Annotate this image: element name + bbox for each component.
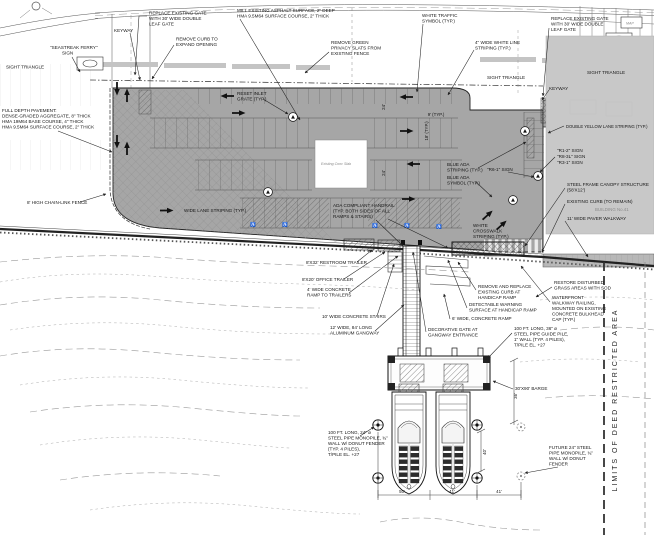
annotation-remove-green: REMOVE GREEN xyxy=(331,40,369,45)
annotation-restore-sod: RESTORE DISTURBED xyxy=(554,280,605,285)
annotation-ramp-trailers: 4' WIDE CONCRETE xyxy=(307,287,351,292)
annotation-ada-handrail: (TYP. BOTH SIDES OF ALL xyxy=(333,209,391,214)
annotation-full-depth: HMA 9.5M64 SURFACE COURSE, 2" THICK xyxy=(2,125,95,130)
utility-symbol xyxy=(32,2,40,10)
annotation-mill-asphalt: HMA 9.5M64 SURFACE COURSE, 2" THICK xyxy=(237,14,330,19)
existing-slab-label: Existing Conc Slab xyxy=(321,162,351,166)
annotation-guide-pile: T/PILE EL. +27 xyxy=(514,343,546,348)
annotation-canopy: STEEL FRAME CANOPY STRUCTURE xyxy=(567,182,649,187)
annotation-crosswalk: WHITE xyxy=(473,223,488,228)
annotation-lane-striping: WIDE LANE STRIPING (TYP.) xyxy=(184,208,247,213)
annotation-canopy: (58'X12') xyxy=(567,188,586,193)
annotation-office-trailer: 8'X20' OFFICE TRAILER xyxy=(302,277,354,282)
annotation-white-line: 4" WIDE WHITE LINE xyxy=(475,40,520,45)
annotation-remove-curb: EXPAND OPENING xyxy=(176,42,217,47)
ghost-stalls-left xyxy=(4,140,104,170)
annotation-railing: WALKWAY RAILING, xyxy=(552,301,596,306)
gate-detail-left xyxy=(77,57,103,70)
annotation-detectable-warning: SURFACE AT HANDICAP RAMP xyxy=(469,308,537,313)
annotation-chain-link: 8' HIGH CHAIN-LINK FENCE xyxy=(27,200,87,205)
annotation-remove-green: PRIVACY SLATS FROM xyxy=(331,46,381,51)
limits-label: LIMITS OF DEED RESTRICTED AREA xyxy=(612,309,619,492)
barge xyxy=(388,348,490,390)
annotation-ada-handrail: RAMPS & STAIRS) xyxy=(333,214,373,219)
annotation-white-traffic: SYMBOL (TYP.) xyxy=(422,19,455,24)
gangway xyxy=(401,240,422,358)
annotation-ada-striping: BLUE ADA xyxy=(447,162,470,167)
annotation-replace-gate-left: REPLACE EXISTING GATE xyxy=(149,11,207,16)
building-41: BUILDING No.41 xyxy=(546,36,654,234)
annotation-double-yellow: DOUBLE YELLOW LANE STRIPING (TYP.) xyxy=(566,124,648,129)
annotation-decorative-gate: DECORATIVE GATE AT xyxy=(428,327,478,332)
annotation-reset-inlet: GRATE (TYP.) xyxy=(237,97,267,102)
dim-18: 18' (TYP.) xyxy=(424,121,429,141)
annotation-existing-curb: EXISTING CURB (TO REMAIN) xyxy=(567,199,633,204)
annotation-seastreak-sign: "SEASTREAK FERRY" xyxy=(50,45,98,50)
ada-symbol-icon: ♿ xyxy=(436,223,442,230)
annotation-future-pile: FENDER xyxy=(549,462,569,467)
annotation-sight-triangle-left: SIGHT TRIANGLE xyxy=(6,65,44,70)
annotation-monopile: 100 FT. LONG, 24" ø xyxy=(328,430,371,435)
annotation-monopile: WALL W/ DONUT FENDER xyxy=(328,441,385,446)
annotation-mill-asphalt: MILL EXISTING ASPHALT SURFACE, 2" DEEP xyxy=(237,8,335,13)
annotation-guide-pile: STEEL PIPE GUIDE PILE, xyxy=(514,332,568,337)
annotation-sign-r3: "R3-1" SIGN xyxy=(557,160,583,165)
ada-symbol-icon: ♿ xyxy=(282,221,288,228)
dim-36: 36' xyxy=(513,393,518,399)
ferry-vessel-right xyxy=(436,384,470,494)
annotation-white-line: STRIPING (TYP.) xyxy=(475,46,511,51)
dim-40: 40' xyxy=(482,449,487,455)
annotation-crosswalk: CROSSWALK xyxy=(473,229,503,234)
annotation-restroom-trailer: 8'X32' RESTROOM TRAILER xyxy=(306,260,368,265)
annotation-sign-r8: "R8-3L" SIGN xyxy=(557,154,585,159)
annotation-replace-gate-right: WITH 30' WIDE DOUBLE xyxy=(551,22,603,27)
annotation-remove-replace-curb: HANDICAP RAMP xyxy=(478,295,516,300)
annotation-ada-symbol: SYMBOL (TYP.) xyxy=(447,181,480,186)
annotation-full-depth: FULL DEPTH PAVEMENT: xyxy=(2,108,57,113)
dim-50: 50' xyxy=(399,489,405,494)
annotation-full-depth: HMA 19M64 BASE COURSE, 4" THICK xyxy=(2,119,84,124)
annotation-remove-replace-curb: EXISTING CURB AT xyxy=(478,290,520,295)
dim-24b: 24' xyxy=(381,170,386,176)
annotation-railing: WATERFRONT xyxy=(552,295,584,300)
map-box: MAP xyxy=(621,17,642,28)
annotation-ada-symbol: BLUE ADA xyxy=(447,175,470,180)
annotation-monopile: (TYP. 4 PILES), xyxy=(328,447,360,452)
annotation-white-traffic: WHITE TRAFFIC xyxy=(422,13,458,18)
annotation-guide-pile: 100 FT. LONG, 36" ø xyxy=(514,326,557,331)
annotation-railing: MOUNTED ON EXISTING xyxy=(552,306,607,311)
annotation-future-pile: FUTURE 24" STEEL xyxy=(549,445,592,450)
annotation-r6-sign: "R6-1" SIGN xyxy=(487,167,513,172)
map-label: MAP xyxy=(626,22,634,26)
ghost-stalls-top-left xyxy=(0,64,96,106)
annotation-remove-replace-curb: REMOVE AND REPLACE xyxy=(478,284,531,289)
dim-24a: 24' xyxy=(381,104,386,110)
annotation-ada-striping: STRIPING (TYP.) xyxy=(447,168,483,173)
annotation-replace-gate-right: REPLACE EXISTING GATE xyxy=(551,16,609,21)
annotation-replace-gate-left: LEAF GATE xyxy=(149,22,174,27)
dim-9: 9' (TYP.) xyxy=(428,112,445,117)
ada-symbol-icon: ♿ xyxy=(372,222,378,229)
annotation-remove-curb: REMOVE CURB TO xyxy=(176,37,218,42)
entrance-island xyxy=(139,90,151,114)
annotation-keyway-right: KEYWAY xyxy=(549,86,568,91)
annotation-gangway: 12' WIDE, 84' LONG xyxy=(330,325,373,330)
annotation-full-depth: DENSE-GRADED AGGREGATE, 8" THICK xyxy=(2,114,91,119)
annotation-future-pile: WALL W/ DONUT xyxy=(549,456,586,461)
annotation-monopile: T/PILE EL. +27 xyxy=(328,452,360,457)
annotation-sight-triangle-mid: SIGHT TRIANGLE xyxy=(487,75,525,80)
annotation-sight-triangle-right: SIGHT TRIANGLE xyxy=(587,70,625,75)
annotation-monopile: STEEL PIPE MONOPILE, ¾" xyxy=(328,436,388,441)
annotation-gangway: ALUMINUM GANGWAY xyxy=(330,331,379,336)
annotation-future-pile: PIPE MONOPILE, ¾" xyxy=(549,451,593,456)
annotation-detectable-warning: DETECTABLE WARNING xyxy=(469,302,523,307)
ferry-vessel-left xyxy=(392,384,426,494)
building-label: BUILDING No.41 xyxy=(595,207,629,212)
gate-post xyxy=(401,240,405,245)
ada-striping-bar xyxy=(527,118,534,158)
existing-fence-line xyxy=(90,80,543,86)
annotation-railing: CAP (TYP.) xyxy=(552,317,576,322)
annotation-railing: CONCRETE BULKHEAD xyxy=(552,312,604,317)
annotation-concrete-stairs: 10' WIDE CONCRETE STAIRS xyxy=(322,314,386,319)
annotation-remove-green: EXISTING FENCE xyxy=(331,51,369,56)
annotation-ramp-trailers: RAMP TO TRAILERS xyxy=(307,293,351,298)
annotation-decorative-gate: GANGWAY ENTRANCE xyxy=(428,333,478,338)
gate-post xyxy=(418,240,422,245)
annotation-seastreak-sign: SIGN xyxy=(62,51,73,56)
annotation-keyway-left: KEYWAY xyxy=(114,28,133,33)
annotation-crosswalk: STRIPING (TYP.) xyxy=(473,234,509,239)
annotation-restore-sod: GRASS AREAS WITH SOD xyxy=(554,286,612,291)
annotation-six-ramp: 6' WIDE, CONCRETE RAMP xyxy=(452,316,512,321)
ada-symbol-icon: ♿ xyxy=(250,221,256,228)
annotation-paver-walkway: 11' WIDE PAVER WALKWAY xyxy=(567,216,626,221)
concrete-ramp-switchback xyxy=(424,256,470,286)
annotation-replace-gate-right: LEAF GATE xyxy=(551,27,576,32)
annotation-sign-r1: "R1-2" SIGN xyxy=(557,148,583,153)
annotation-guide-pile: 1" WALL (TYP. 4 PILES), xyxy=(514,337,565,342)
annotation-replace-gate-left: WITH 30' WIDE DOUBLE xyxy=(149,16,201,21)
dim-41b: 41' xyxy=(496,489,502,494)
deed-restricted-limit: LIMITS OF DEED RESTRICTED AREA xyxy=(604,262,645,535)
annotation-reset-inlet: RESET INLET xyxy=(237,91,267,96)
existing-slab: Existing Conc Slab xyxy=(315,140,367,188)
site-plan-drawing: MAP xyxy=(0,0,654,535)
annotation-ada-handrail: ADA COMPLIANT HANDRAIL xyxy=(333,203,395,208)
dim-41a: 41' xyxy=(449,489,455,494)
annotation-barge: 30'X90' BARGE xyxy=(515,386,547,391)
